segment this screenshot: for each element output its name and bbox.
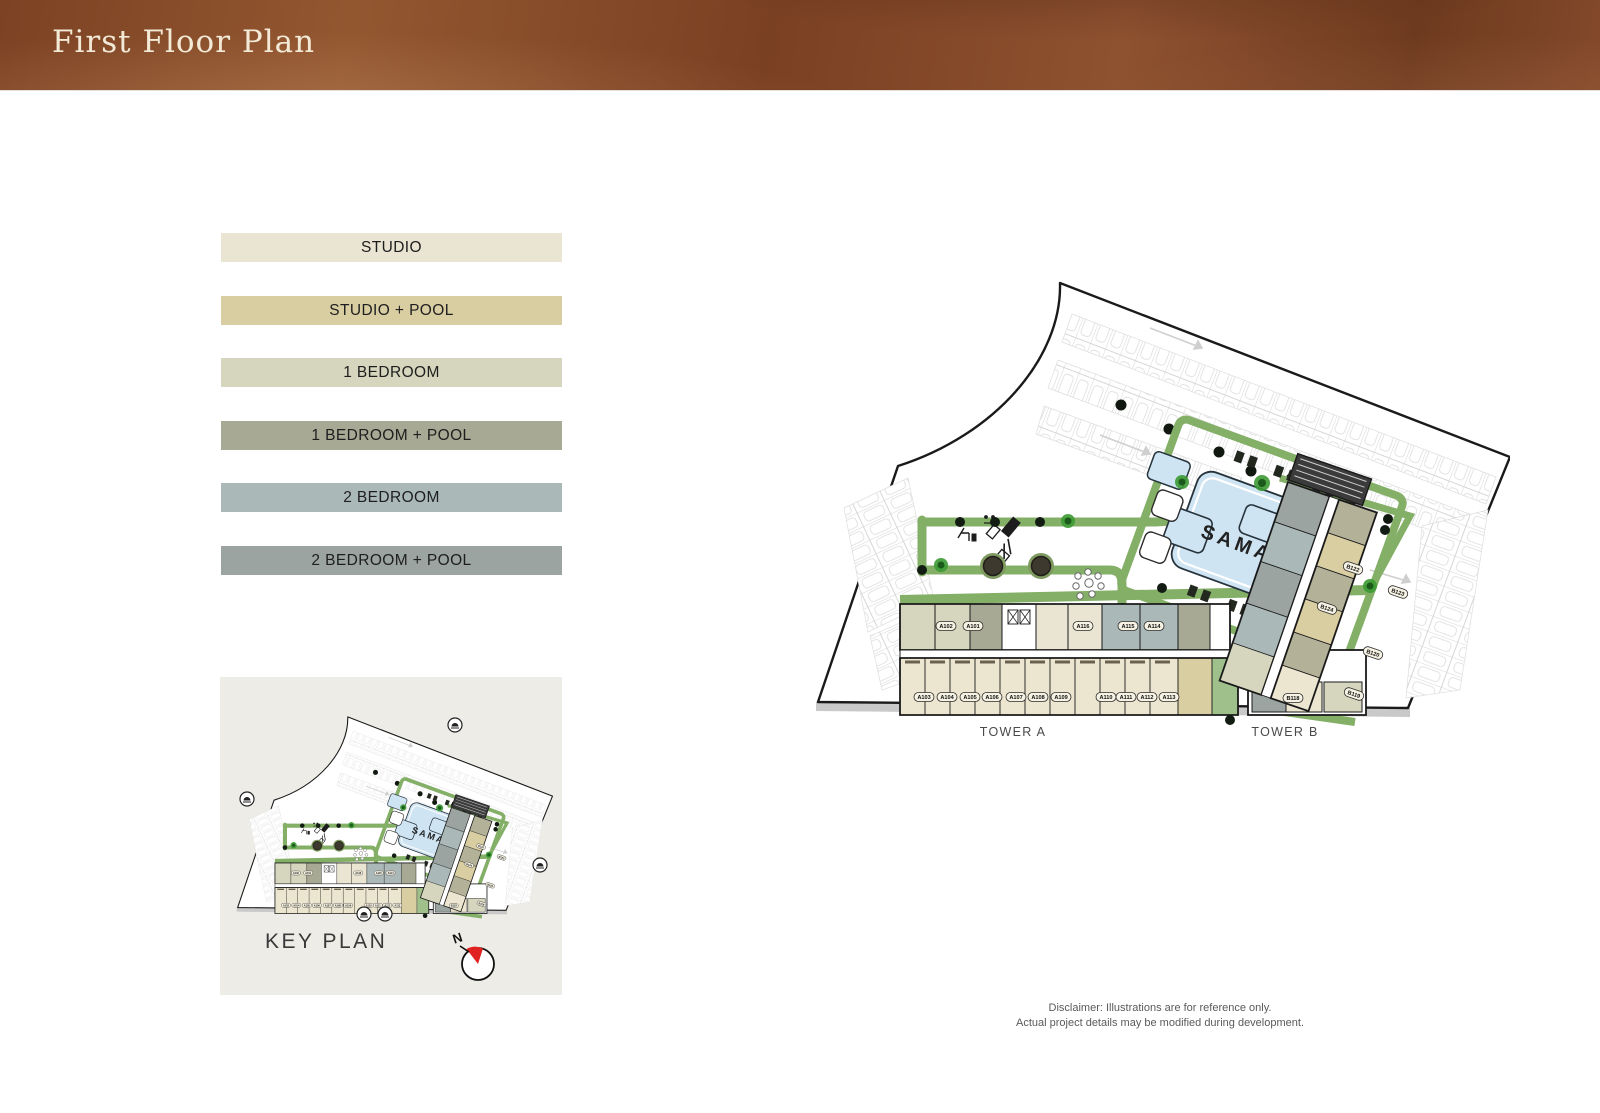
legend-item-1-bedroom-pool: 1 BEDROOM + POOL xyxy=(221,421,562,450)
legend-item-studio-pool: STUDIO + POOL xyxy=(221,296,562,325)
legend-item-1-bedroom: 1 BEDROOM xyxy=(221,358,562,387)
legend-item-2-bedroom-pool: 2 BEDROOM + POOL xyxy=(221,546,562,575)
key-plan-title: KEY PLAN xyxy=(265,930,387,953)
legend-item-2-bedroom: 2 BEDROOM xyxy=(221,483,562,512)
first-floor-site-plan: SAMANA xyxy=(810,270,1510,750)
lobby-gate-icon xyxy=(357,907,371,921)
lobby-gate-icon xyxy=(533,858,547,872)
disclaimer-line-2: Actual project details may be modified d… xyxy=(810,1016,1510,1031)
north-compass-icon: N xyxy=(451,929,494,980)
floor-plan-page: First Floor Plan STUDIO STUDIO + POOL 1 … xyxy=(0,0,1600,1113)
disclaimer: Disclaimer: Illustrations are for refere… xyxy=(810,1001,1510,1031)
page-title: First Floor Plan xyxy=(52,24,315,60)
disclaimer-line-1: Disclaimer: Illustrations are for refere… xyxy=(810,1001,1510,1016)
lobby-gate-icon xyxy=(240,792,254,806)
lobby-gate-icon xyxy=(378,907,392,921)
lobby-gate-icon xyxy=(448,718,462,732)
legend-item-studio: STUDIO xyxy=(221,233,562,262)
tower-b-label: TOWER B xyxy=(1251,725,1318,739)
page-header: First Floor Plan xyxy=(0,0,1600,91)
svg-text:N: N xyxy=(451,929,465,946)
key-plan-mini-map xyxy=(237,717,553,918)
tower-a-label: TOWER A xyxy=(980,725,1047,739)
key-plan-panel: KEY PLAN N xyxy=(220,677,562,995)
